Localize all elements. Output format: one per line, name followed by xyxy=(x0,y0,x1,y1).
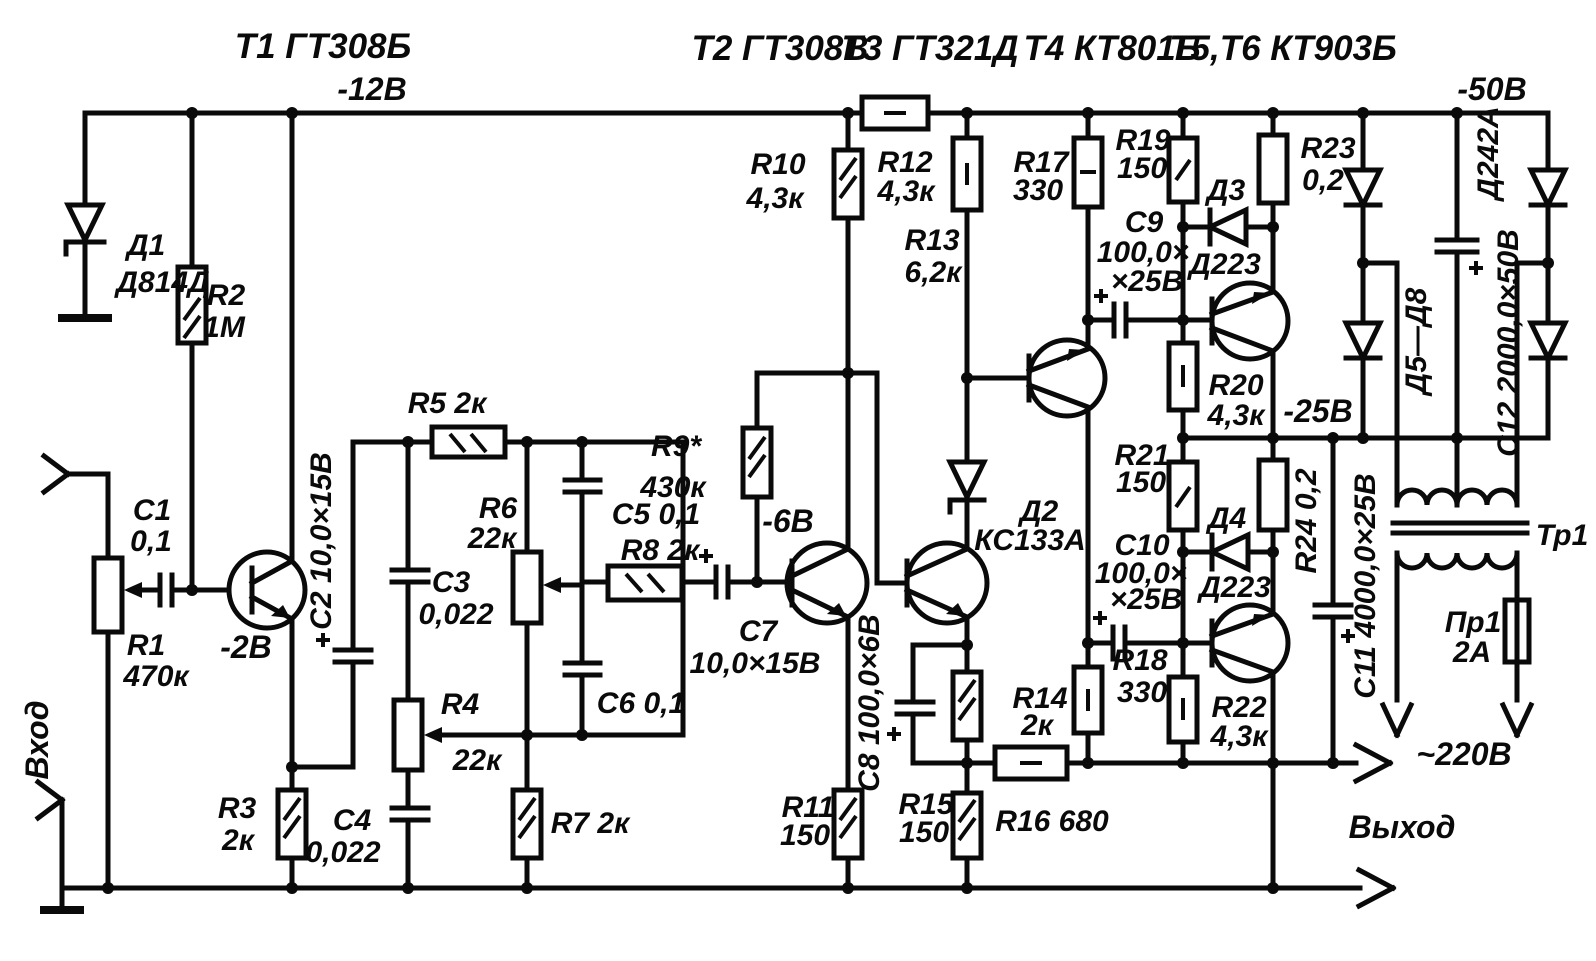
d4-type-label: Д223 xyxy=(1196,571,1271,604)
output-label: Выход xyxy=(1349,809,1456,845)
r5-label: R5 2к xyxy=(408,387,488,420)
r16-label: R16 680 xyxy=(995,805,1109,838)
schematic-page: Т1 ГТ308Б -12В Т2 ГТ308В Т3 ГТ321Д Т4 КТ… xyxy=(0,0,1596,961)
r2-value-label: 1М xyxy=(203,311,246,344)
c1-value-label: 0,1 xyxy=(130,525,172,558)
capacitor-c1 xyxy=(160,575,172,605)
capacitor-c7 xyxy=(699,549,728,597)
d4-name-label: Д4 xyxy=(1205,502,1247,535)
r22-value-label: 4,3к xyxy=(1210,720,1270,753)
schematic-canvas: Т1 ГТ308Б -12В Т2 ГТ308В Т3 ГТ321Д Т4 КТ… xyxy=(0,0,1596,961)
capacitor-c8 xyxy=(887,702,933,741)
d1-name-label: Д1 xyxy=(124,229,165,262)
resistor-r24 xyxy=(1259,460,1287,530)
c4-value-label: 0,022 xyxy=(305,836,380,869)
r10-name-label: R10 xyxy=(750,148,805,181)
t1-voltage-label: -2В xyxy=(220,629,272,665)
r4-name-label: R4 xyxy=(441,688,480,721)
r7-label: R7 2к xyxy=(551,807,631,840)
d3-name-label: Д3 xyxy=(1204,174,1246,207)
r21-value-label: 150 xyxy=(1116,466,1166,499)
mains-terminal-icon xyxy=(1383,705,1531,735)
resistor-r11 xyxy=(834,790,862,858)
input-label: Вход xyxy=(19,700,55,779)
wires xyxy=(62,113,1548,888)
c3-name-label: C3 xyxy=(432,566,471,599)
r4-value-label: 22к xyxy=(452,744,503,777)
r11-value-label: 150 xyxy=(780,819,830,852)
t3-type-label: Т3 ГТ321Д xyxy=(841,29,1018,68)
resistor-r6 xyxy=(513,552,561,623)
pr1-value-label: 2А xyxy=(1452,636,1491,669)
r10-value-label: 4,3к xyxy=(746,182,806,215)
r13-name-label: R13 xyxy=(904,224,959,257)
resistor-r15 xyxy=(953,793,981,858)
c8-label: C8 100,0×6В xyxy=(853,614,886,792)
r2-name-label: R2 xyxy=(207,279,246,312)
capacitor-c2 xyxy=(316,633,371,662)
r19-value-label: 150 xyxy=(1117,152,1167,185)
t1-type-label: Т1 ГТ308Б xyxy=(235,27,412,66)
capacitor-c3 xyxy=(392,570,428,582)
resistor-r20 xyxy=(1169,343,1197,410)
r14-value-label: 2к xyxy=(1020,709,1055,742)
rail-50v-label: -50В xyxy=(1457,71,1526,107)
c9-name-label: C9 xyxy=(1125,206,1164,239)
pr1-name-label: Пр1 xyxy=(1445,606,1502,639)
transformer-tr1 xyxy=(1393,490,1527,568)
d58-type-label: Д242А xyxy=(1472,106,1505,202)
t56-type-label: Т5,Т6 КТ903Б xyxy=(1169,29,1397,68)
r20-name-label: R20 xyxy=(1208,369,1263,402)
capacitor-c6 xyxy=(565,663,600,675)
diode-d3-icon xyxy=(1210,210,1246,244)
r6-name-label: R6 xyxy=(479,492,518,525)
d2-type-label: КС133А xyxy=(974,524,1085,557)
c4-name-label: C4 xyxy=(333,804,372,837)
resistor-r5 xyxy=(432,427,505,457)
r15-value-label: 150 xyxy=(899,816,949,849)
resistor-r7 xyxy=(513,790,541,858)
c2-label: C2 10,0×15В xyxy=(305,452,338,630)
c3-value-label: 0,022 xyxy=(418,598,493,631)
r6-value-label: 22к xyxy=(467,522,518,555)
capacitor-c12 xyxy=(1437,240,1483,275)
resistor-r21 xyxy=(1169,462,1197,530)
labels: Т1 ГТ308Б -12В Т2 ГТ308В Т3 ГТ321Д Т4 КТ… xyxy=(19,27,1588,869)
diode-d4-icon xyxy=(1212,535,1248,569)
resistor-r19 xyxy=(1169,138,1197,202)
resistor-r13 xyxy=(953,138,981,210)
r18-value-label: 330 xyxy=(1117,676,1167,709)
transistor-t6 xyxy=(1212,605,1288,681)
resistor-r3 xyxy=(278,790,306,858)
fuse-pr1 xyxy=(1505,600,1529,662)
mains-label: ~220В xyxy=(1416,736,1511,772)
r18-name-label: R18 xyxy=(1112,644,1167,677)
r24-label: R24 0,2 xyxy=(1290,468,1323,573)
resistor-r1 xyxy=(94,558,142,632)
resistor-r4 xyxy=(394,700,442,770)
c7-value-label: 10,0×15В xyxy=(690,647,821,680)
capacitor-c5 xyxy=(565,480,600,492)
resistor-r14 xyxy=(995,747,1067,779)
d58-name-label: Д5—Д8 xyxy=(1400,287,1433,397)
r13-value-label: 6,2к xyxy=(905,256,964,289)
transistor-t4 xyxy=(1029,340,1105,416)
resistor-r18 xyxy=(1074,667,1102,733)
resistor-r9 xyxy=(743,428,771,497)
resistor-r8 xyxy=(608,566,682,600)
r9-value-label: 430к xyxy=(639,471,707,504)
r1-name-label: R1 xyxy=(127,629,165,662)
tr1-name-label: Тр1 xyxy=(1536,519,1589,552)
capacitor-c4 xyxy=(392,808,428,820)
resistor-r12 xyxy=(862,97,928,129)
r23-name-label: R23 xyxy=(1300,132,1355,165)
rail-12v-label: -12В xyxy=(337,71,406,107)
r12-value-label: 4,3к xyxy=(877,175,937,208)
r9-name-label: R9* xyxy=(651,430,702,463)
resistor-r22 xyxy=(1169,677,1197,742)
c1-name-label: C1 xyxy=(133,494,171,527)
c6-label: C6 0,1 xyxy=(597,687,685,720)
transistor-t1 xyxy=(229,552,305,628)
r1-value-label: 470к xyxy=(122,660,190,693)
transistor-t5 xyxy=(1212,283,1288,359)
t2-voltage-label: -6В xyxy=(762,503,814,539)
r3-name-label: R3 xyxy=(218,792,257,825)
transistor-t2 xyxy=(787,543,867,623)
r3-value-label: 2к xyxy=(221,824,256,857)
r8-label: R8 2к xyxy=(621,534,701,567)
resistor-r10 xyxy=(834,150,862,218)
c12-label: С12 2000,0×50В xyxy=(1492,229,1525,457)
c7-name-label: C7 xyxy=(739,615,779,648)
r20-value-label: 4,3к xyxy=(1207,399,1267,432)
resistor-r23 xyxy=(1259,135,1287,203)
resistor-r16 xyxy=(953,672,981,740)
d3-type-label: Д223 xyxy=(1186,248,1261,281)
r17-value-label: 330 xyxy=(1013,174,1063,207)
r23-value-label: 0,2 xyxy=(1302,164,1344,197)
c10-value2-label: ×25В xyxy=(1110,583,1183,616)
rail-25v-label: -25В xyxy=(1283,393,1352,429)
d1-type-label: Д814Д xyxy=(113,266,209,299)
c9-value2-label: ×25В xyxy=(1111,265,1184,298)
c11-label: С11 4000,0×25В xyxy=(1349,473,1382,698)
resistor-r17 xyxy=(1074,138,1102,207)
